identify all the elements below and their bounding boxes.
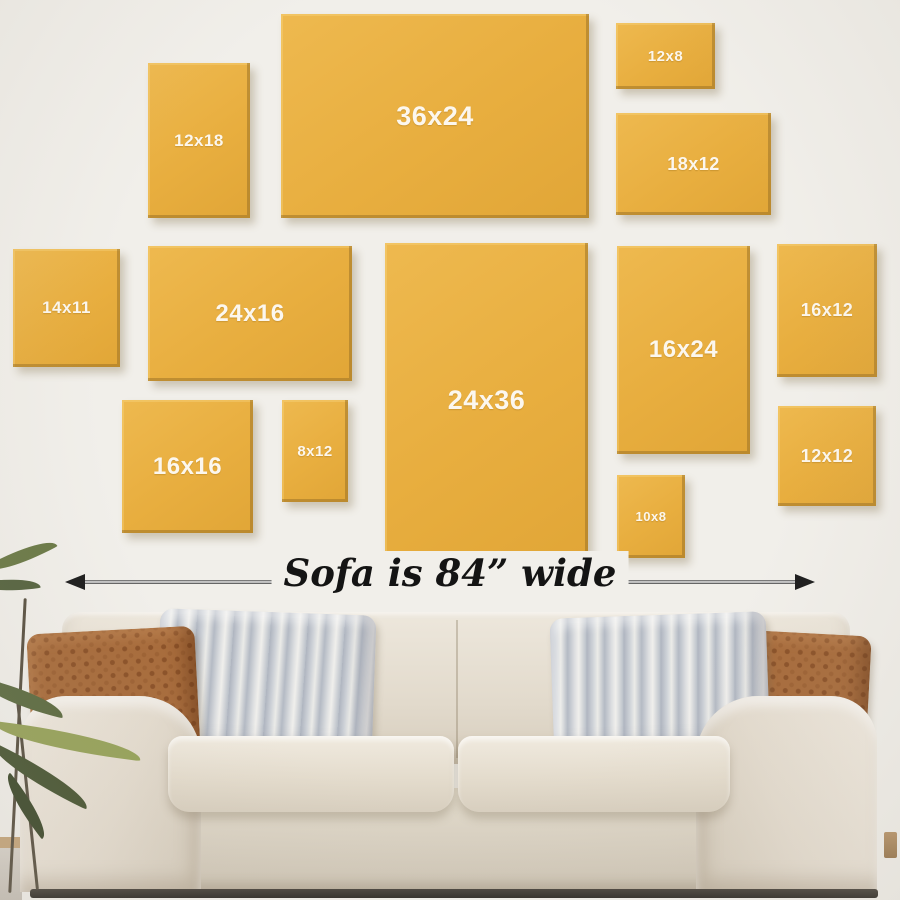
frame-size-label: 12x12 (801, 446, 854, 467)
frame-10x8: 10x8 (617, 475, 685, 558)
frame-size-label: 16x12 (801, 300, 854, 321)
sofa-seat-cushion-right (458, 736, 730, 812)
frame-size-label: 14x11 (42, 298, 91, 318)
frame-size-label: 10x8 (636, 509, 667, 524)
frame-size-label: 8x12 (297, 443, 332, 460)
plant-leaf (0, 574, 41, 596)
frame-24x16: 24x16 (148, 246, 352, 381)
sofa-width-label: Sofa is 84” wide (272, 551, 629, 595)
frame-size-label: 12x18 (174, 131, 224, 151)
frame-12x12: 12x12 (778, 406, 876, 506)
sofa-seat-cushion-left (168, 736, 454, 812)
frame-size-label: 24x16 (215, 300, 284, 328)
sofa-floor-shadow (30, 889, 878, 898)
frame-14x11: 14x11 (13, 249, 120, 367)
frame-18x12: 18x12 (616, 113, 771, 215)
frame-size-label: 16x24 (649, 336, 718, 364)
scene: 12x1836x2412x818x1214x1124x1624x3616x241… (0, 0, 900, 900)
sofa-back-seam (456, 620, 458, 758)
sofa-foot-right (884, 832, 897, 858)
frame-size-label: 36x24 (396, 101, 474, 132)
plant-leaf (0, 532, 58, 580)
frame-size-label: 16x16 (153, 453, 222, 481)
frame-16x12: 16x12 (777, 244, 877, 377)
frame-36x24: 36x24 (281, 14, 589, 218)
frame-12x18: 12x18 (148, 63, 250, 218)
frame-size-label: 18x12 (667, 154, 720, 175)
frame-12x8: 12x8 (616, 23, 715, 89)
frame-8x12: 8x12 (282, 400, 348, 502)
arrow-left-icon (65, 574, 85, 590)
frame-16x24: 16x24 (617, 246, 750, 454)
arrow-right-icon (795, 574, 815, 590)
frame-24x36: 24x36 (385, 243, 588, 557)
frame-size-label: 12x8 (648, 48, 683, 65)
frame-16x16: 16x16 (122, 400, 253, 533)
frame-size-label: 24x36 (448, 385, 526, 416)
